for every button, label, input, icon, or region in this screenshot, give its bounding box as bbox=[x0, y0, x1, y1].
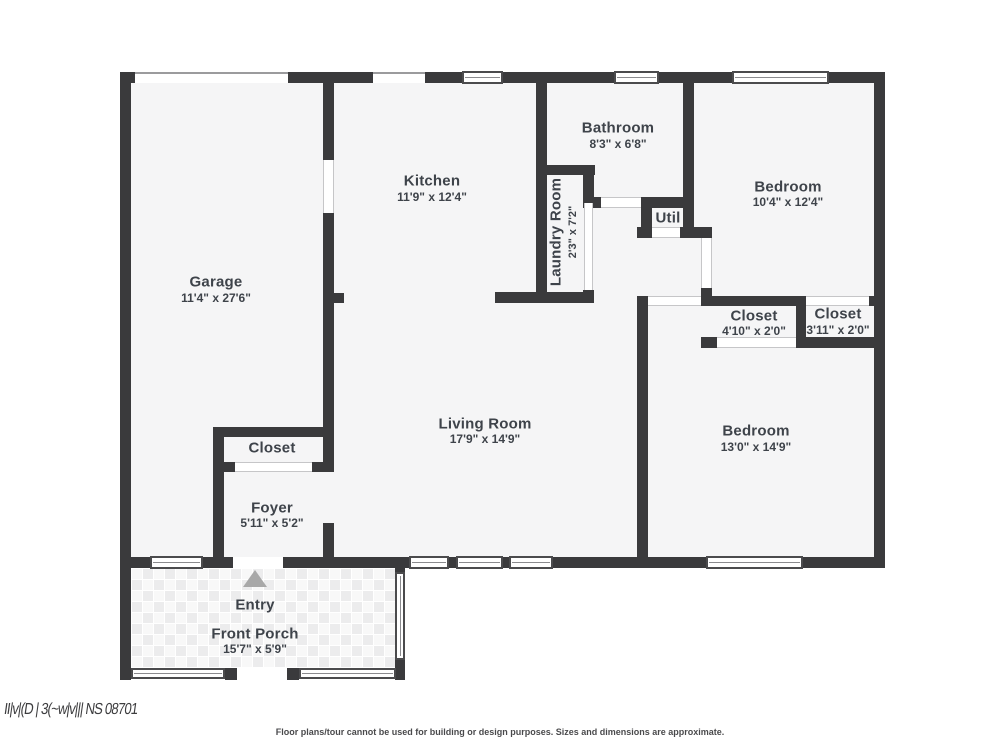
room-dims-closet1: 4'10" x 2'0" bbox=[722, 324, 786, 338]
wall-closets-top bbox=[701, 296, 806, 306]
window bbox=[706, 556, 803, 569]
room-dims-porch: 15'7" x 5'9" bbox=[223, 642, 287, 656]
wall-closet3-top bbox=[213, 427, 334, 437]
closet1-door-opening bbox=[717, 337, 796, 348]
window bbox=[614, 71, 659, 84]
porch-wall-left bbox=[120, 557, 131, 680]
mls-watermark: II|v|(D | 3(~w|v||| NS 08701 bbox=[3, 701, 139, 719]
room-label-porch: Front Porch bbox=[211, 626, 298, 643]
room-label-living: Living Room bbox=[438, 416, 531, 433]
laundry-door-opening bbox=[584, 203, 593, 290]
room-dims-kitchen: 11'9" x 12'4" bbox=[397, 190, 467, 204]
wall-kitchen-bathroom bbox=[536, 72, 547, 303]
room-dims-closet2: 3'11" x 2'0" bbox=[806, 323, 869, 337]
disclaimer-text: Floor plans/tour cannot be used for buil… bbox=[0, 727, 1000, 737]
porch-post bbox=[395, 557, 405, 572]
wall-foyer-right-stub bbox=[323, 523, 334, 557]
wall-closet3-bottom-right bbox=[312, 462, 334, 472]
room-dims-garage: 11'4" x 27'6" bbox=[181, 291, 251, 305]
closet3-door-opening bbox=[235, 462, 312, 472]
room-label-bedroom2: Bedroom bbox=[722, 423, 789, 440]
wall-closets-top-right bbox=[869, 296, 885, 306]
porch-rail bbox=[131, 668, 225, 679]
garage-door-opening bbox=[135, 72, 288, 83]
room-label-foyer: Foyer bbox=[251, 500, 293, 517]
room-dims-laundry: 2'3" x 7'2" bbox=[567, 206, 579, 258]
wall-foyer-left bbox=[213, 427, 224, 557]
porch-post bbox=[287, 668, 299, 680]
kitchen-wall-opening bbox=[373, 72, 425, 83]
exterior-wall-left bbox=[120, 72, 131, 568]
room-label-bathroom: Bathroom bbox=[582, 120, 654, 137]
util-door-opening bbox=[652, 227, 680, 238]
wall-garage-kitchen-upper bbox=[323, 72, 334, 160]
garage-interior-door-opening bbox=[323, 160, 334, 213]
window bbox=[732, 71, 829, 84]
room-dims-bathroom: 8'3" x 6'8" bbox=[589, 137, 646, 151]
porch-post bbox=[395, 660, 405, 680]
wall-closet3-bottom-left bbox=[213, 462, 235, 472]
closet2-door-opening bbox=[806, 296, 869, 306]
floor-plan: Garage 11'4" x 27'6" Kitchen 11'9" x 12'… bbox=[0, 0, 1000, 750]
room-label-entry: Entry bbox=[235, 597, 274, 614]
room-dims-bedroom1: 10'4" x 12'4" bbox=[753, 195, 823, 209]
porch-rail bbox=[299, 668, 396, 679]
window bbox=[462, 71, 503, 84]
bedroom2-door-opening bbox=[648, 296, 701, 306]
wall-closets-bottom-left bbox=[701, 337, 717, 348]
room-label-garage: Garage bbox=[190, 274, 243, 291]
front-door-opening bbox=[233, 557, 283, 568]
bathroom-door-opening bbox=[601, 197, 641, 208]
room-label-kitchen: Kitchen bbox=[404, 173, 460, 190]
room-dims-living: 17'9" x 14'9" bbox=[450, 432, 520, 446]
entry-arrow-icon bbox=[243, 570, 267, 587]
room-label-bedroom1: Bedroom bbox=[754, 179, 821, 196]
room-label-laundry: Laundry Room bbox=[548, 178, 565, 286]
wall-laundry-right-lower bbox=[583, 290, 594, 303]
window bbox=[150, 556, 203, 569]
room-label-closet3: Closet bbox=[248, 440, 295, 457]
room-label-closet1: Closet bbox=[730, 308, 777, 325]
porch-rail-right bbox=[395, 572, 405, 660]
room-label-closet2: Closet bbox=[814, 306, 861, 323]
window bbox=[409, 556, 449, 569]
wall-living-bedroom2 bbox=[637, 296, 648, 568]
room-dims-foyer: 5'11" x 5'2" bbox=[240, 516, 303, 530]
wall-stub-kitchen bbox=[334, 293, 344, 303]
wall-closets-bottom-right bbox=[796, 337, 885, 348]
window bbox=[509, 556, 553, 569]
wall-util-bottom-left bbox=[637, 227, 652, 238]
wall-kitchen-bottom bbox=[495, 292, 594, 303]
exterior-wall-right bbox=[874, 72, 885, 568]
window bbox=[456, 556, 503, 569]
room-dims-bedroom2: 13'0" x 14'9" bbox=[721, 440, 791, 454]
room-label-util: Util bbox=[656, 210, 681, 227]
wall-bathroom-bedroom bbox=[683, 72, 694, 238]
bedroom1-door-opening bbox=[701, 238, 712, 288]
porch-post bbox=[225, 668, 237, 680]
